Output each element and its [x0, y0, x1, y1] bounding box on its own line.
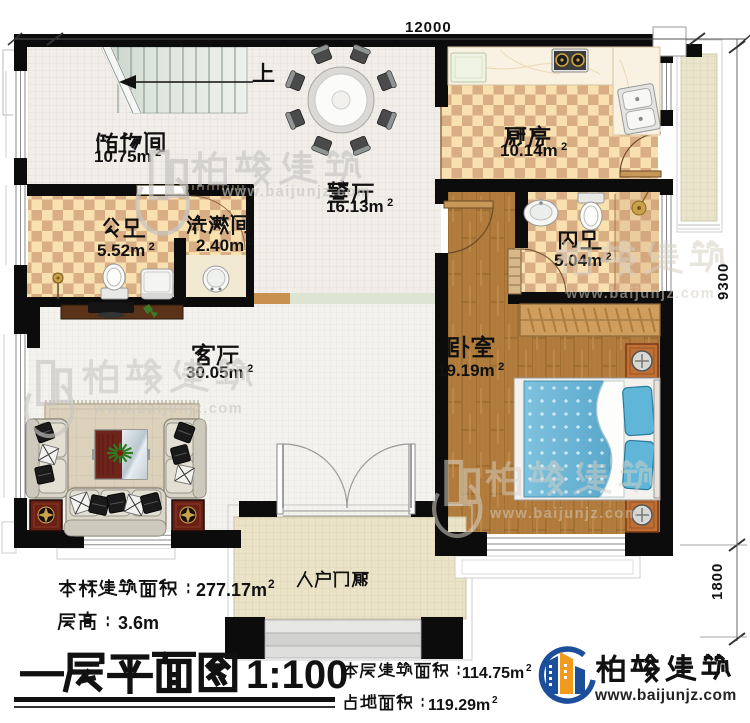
svg-text:2: 2 [387, 197, 393, 209]
svg-text:2: 2 [561, 141, 567, 153]
svg-text:10.14m: 10.14m [500, 141, 558, 160]
svg-text:114.75m: 114.75m [462, 665, 524, 682]
svg-text:2: 2 [498, 361, 504, 373]
svg-text:2: 2 [268, 577, 275, 591]
svg-text:3.6m: 3.6m [118, 613, 159, 633]
svg-text:12000: 12000 [405, 19, 452, 36]
svg-text:2: 2 [248, 236, 254, 248]
svg-text:2: 2 [149, 241, 155, 253]
svg-text:9300: 9300 [715, 263, 732, 300]
svg-text:www.baijunjz.com: www.baijunjz.com [221, 184, 371, 200]
svg-text:277.17m: 277.17m [196, 580, 267, 600]
svg-text:1:100: 1:100 [246, 653, 348, 697]
svg-text:www.baijunjz.com: www.baijunjz.com [489, 506, 639, 522]
svg-text:2: 2 [492, 695, 498, 706]
svg-text:www.baijunjz.com: www.baijunjz.com [594, 687, 737, 704]
svg-text:www.baijunjz.com: www.baijunjz.com [93, 401, 243, 417]
svg-text:19.19m: 19.19m [437, 361, 495, 380]
svg-text:2.40m: 2.40m [196, 236, 244, 255]
svg-text:www.baijunjz.com: www.baijunjz.com [565, 286, 715, 302]
svg-text:5.52m: 5.52m [97, 241, 145, 260]
svg-text:119.29m: 119.29m [428, 697, 490, 714]
svg-text:2: 2 [526, 663, 532, 674]
svg-text:1800: 1800 [709, 563, 726, 600]
svg-text:10.75m: 10.75m [94, 147, 152, 166]
